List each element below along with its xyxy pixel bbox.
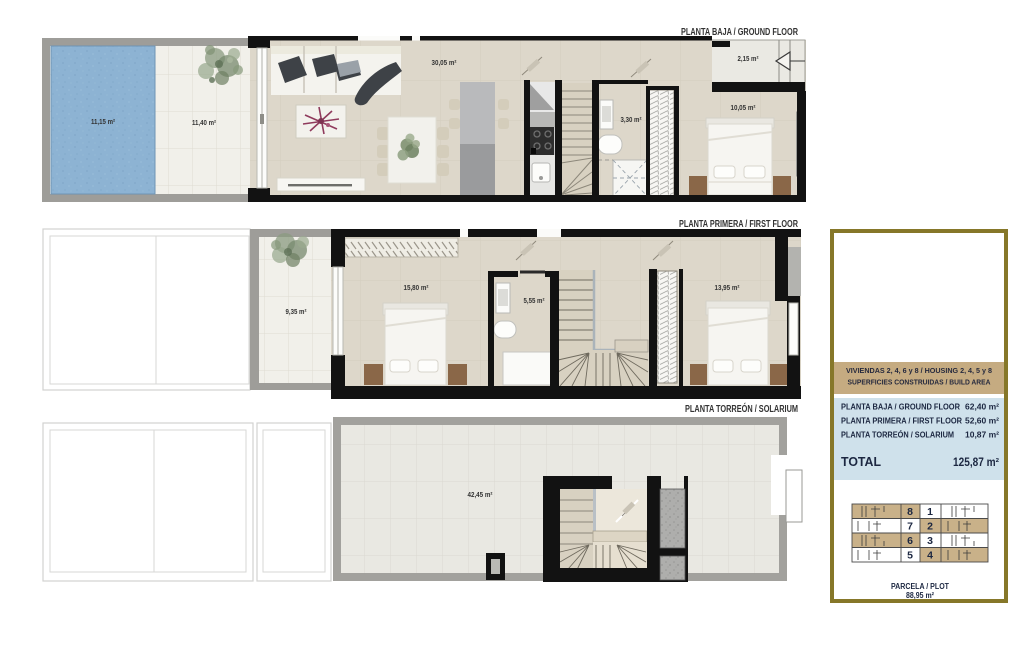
svg-text:15,80 m²: 15,80 m² (404, 283, 430, 292)
svg-text:9,35 m²: 9,35 m² (286, 307, 308, 316)
svg-text:3: 3 (927, 535, 933, 547)
svg-text:52,60 m²: 52,60 m² (965, 417, 999, 426)
svg-text:VIVIENDAS 2, 4, 6 y 8 / HOUSIN: VIVIENDAS 2, 4, 6 y 8 / HOUSING 2, 4, 5 … (846, 366, 992, 375)
svg-text:PLANTA TORREÓN / SOLARIUM: PLANTA TORREÓN / SOLARIUM (841, 429, 954, 440)
svg-text:42,45 m²: 42,45 m² (468, 490, 494, 499)
svg-text:62,40 m²: 62,40 m² (965, 403, 999, 412)
svg-text:5,55 m²: 5,55 m² (524, 296, 546, 305)
svg-text:TOTAL: TOTAL (841, 454, 881, 469)
svg-text:PLANTA TORREÓN / SOLARIUM: PLANTA TORREÓN / SOLARIUM (685, 402, 798, 415)
svg-text:PLANTA PRIMERA / FIRST FLOOR: PLANTA PRIMERA / FIRST FLOOR (841, 417, 962, 426)
svg-text:10,87 m²: 10,87 m² (965, 431, 999, 440)
svg-text:7: 7 (907, 521, 913, 533)
svg-text:PLANTA BAJA / GROUND FLOOR: PLANTA BAJA / GROUND FLOOR (841, 403, 960, 412)
svg-text:PARCELA / PLOT: PARCELA / PLOT (891, 581, 950, 591)
svg-text:11,40 m²: 11,40 m² (192, 118, 217, 127)
svg-text:3,30 m²: 3,30 m² (621, 115, 643, 124)
svg-text:13,95 m²: 13,95 m² (715, 283, 741, 292)
svg-text:10,05 m²: 10,05 m² (731, 103, 757, 112)
svg-text:5: 5 (907, 550, 913, 562)
svg-text:1: 1 (927, 506, 933, 518)
svg-text:8: 8 (907, 506, 913, 518)
svg-text:88,95 m²: 88,95 m² (906, 591, 934, 600)
svg-text:2,15 m²: 2,15 m² (738, 54, 760, 63)
svg-text:2: 2 (927, 521, 933, 533)
svg-text:30,05 m²: 30,05 m² (432, 58, 458, 67)
svg-text:4: 4 (927, 550, 933, 562)
svg-text:SUPERFICIES CONSTRUIDAS / BUIL: SUPERFICIES CONSTRUIDAS / BUILD AREA (848, 378, 992, 387)
svg-text:11,15 m²: 11,15 m² (91, 117, 116, 126)
svg-text:PLANTA PRIMERA / FIRST FLOOR: PLANTA PRIMERA / FIRST FLOOR (679, 218, 798, 230)
svg-text:125,87 m²: 125,87 m² (953, 457, 999, 469)
svg-text:6: 6 (907, 535, 913, 547)
